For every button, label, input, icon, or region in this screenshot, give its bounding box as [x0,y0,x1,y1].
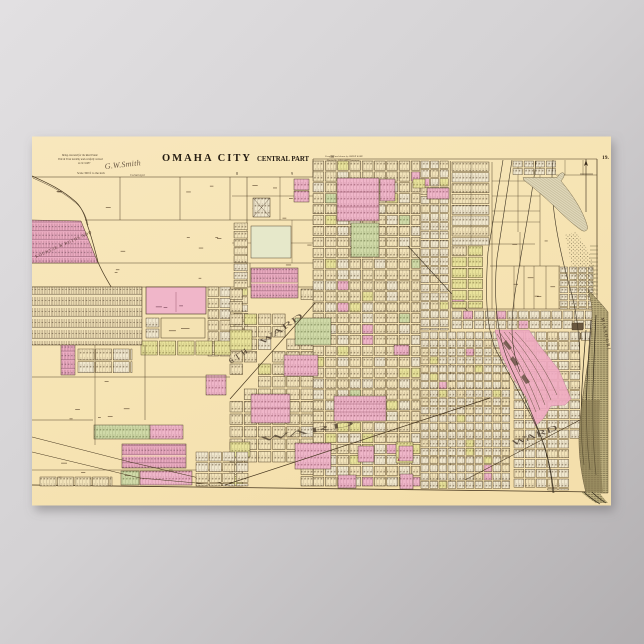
svg-text:CENTRAL PART: CENTRAL PART [257,156,309,163]
svg-text:to Oct 1887: to Oct 1887 [78,162,91,165]
svg-text:Co.Surveyor: Co.Surveyor [130,173,146,177]
svg-text:Scale 300 ft to the inch: Scale 300 ft to the inch [77,171,105,175]
svg-text:Compiled and drawn by ABNER WA: Compiled and drawn by ABNER WARE [325,155,363,158]
svg-text:19.: 19. [602,155,610,161]
svg-text:Title & Trust monthly and care: Title & Trust monthly and carefully revi… [58,158,103,161]
svg-text:OMAHA CITY: OMAHA CITY [162,153,250,164]
svg-text:8: 8 [236,171,238,176]
svg-text:9: 9 [291,171,293,176]
svg-text:Revised by GEO SMITH surveyor: Revised by GEO SMITH surveyor [326,159,359,162]
svg-text:Being executed for the Real Es: Being executed for the Real Estate [62,154,99,157]
